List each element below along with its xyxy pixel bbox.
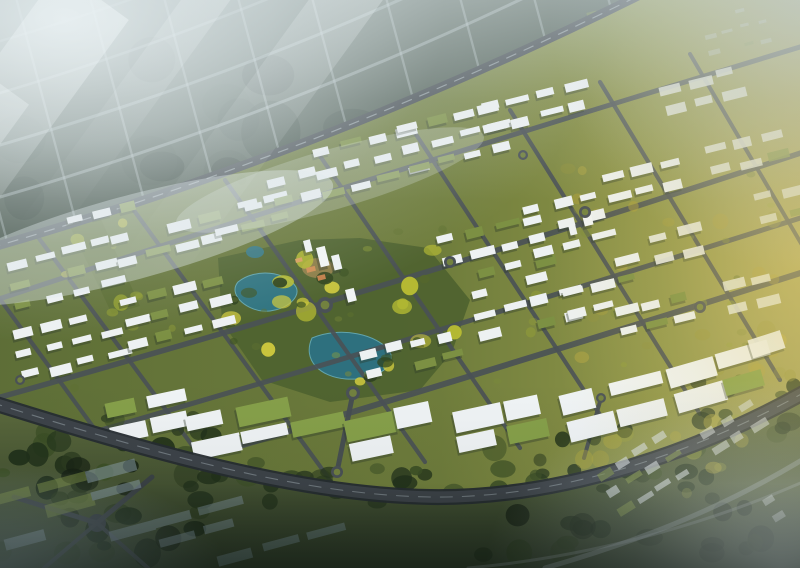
masterplan-render-canvas <box>0 0 800 568</box>
aerial-city-masterplan <box>0 0 800 568</box>
layer-atmosphere <box>0 0 800 568</box>
